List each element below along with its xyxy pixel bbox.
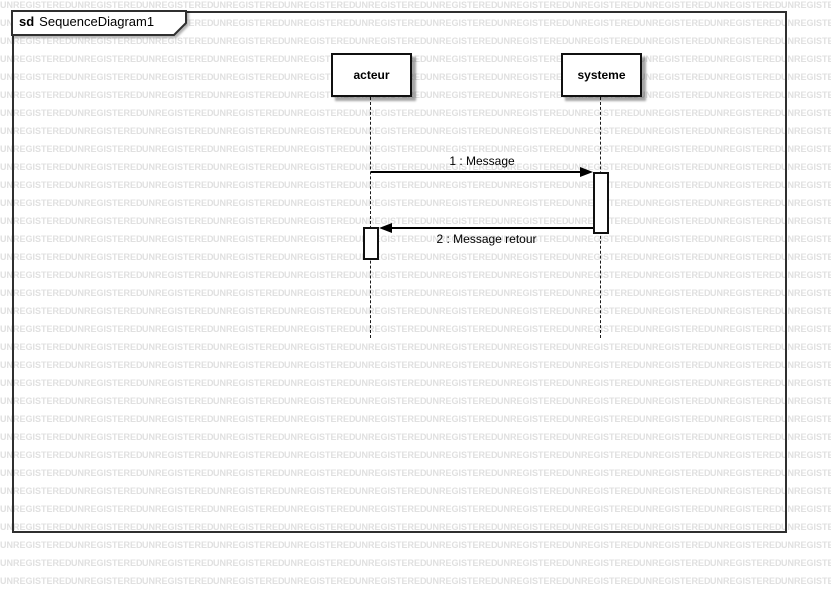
lifeline-head-acteur[interactable]: acteur (331, 53, 412, 97)
frame-tab-label: sdSequenceDiagram1 (19, 14, 154, 29)
message-2-arrowhead-icon (379, 223, 392, 233)
message-1-line[interactable] (371, 171, 581, 173)
lifeline-head-systeme[interactable]: systeme (561, 53, 642, 97)
message-1-label[interactable]: 1 : Message (371, 154, 593, 168)
message-2-line[interactable] (391, 227, 593, 229)
lifeline-name-acteur: acteur (353, 68, 389, 82)
lifeline-name-systeme: systeme (577, 68, 625, 82)
message-1-arrowhead-icon (580, 167, 593, 177)
activation-bar-systeme[interactable] (593, 172, 609, 234)
message-2-label[interactable]: 2 : Message retour (380, 232, 593, 246)
diagram-canvas[interactable]: UNREGISTEREDUNREGISTEREDUNREGISTEREDUNRE… (0, 0, 831, 577)
diagram-title: SequenceDiagram1 (39, 14, 154, 29)
frame-keyword: sd (19, 14, 34, 29)
lifeline-acteur-line[interactable] (370, 97, 371, 338)
activation-bar-acteur[interactable] (363, 227, 379, 260)
